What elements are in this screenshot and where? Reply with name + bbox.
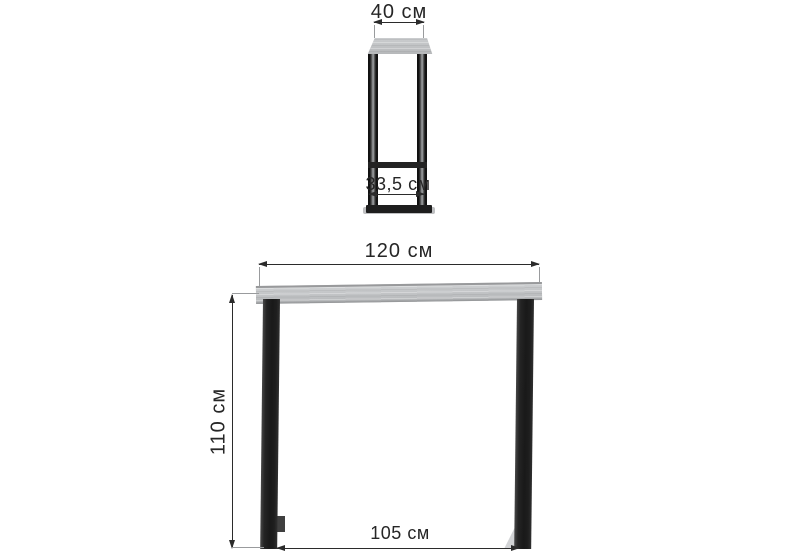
extension-line	[374, 25, 375, 38]
tabletop-side	[365, 36, 435, 56]
dimension-diagram: 40 см 33,5 см 120 см	[0, 0, 800, 560]
front-view-figure: 120 см 110 см 105 см	[0, 230, 800, 560]
arrowhead-left-icon	[373, 19, 382, 25]
front-width-label: 120 см	[339, 240, 459, 263]
arrowhead-left-icon	[368, 191, 377, 197]
arrowhead-left-icon	[258, 261, 267, 267]
extension-line	[423, 25, 424, 38]
side-view-figure: 40 см 33,5 см	[0, 0, 800, 230]
arrowhead-right-icon	[416, 19, 425, 25]
front-width-dimension-line	[259, 264, 539, 265]
arrowhead-left-icon	[276, 545, 285, 551]
front-height-label: 110 см	[208, 377, 231, 467]
extension-line	[259, 267, 260, 287]
rear-foot-left	[277, 516, 285, 532]
arrowhead-right-icon	[511, 545, 520, 551]
tabletop-front	[256, 282, 542, 304]
side-top-width-dimension-line	[374, 22, 424, 23]
side-top-width-label: 40 см	[339, 1, 459, 24]
arrowhead-right-icon	[531, 261, 540, 267]
front-base-width-dimension-line	[277, 548, 519, 549]
table-leg-front-right	[514, 299, 534, 549]
foot-bar	[366, 205, 432, 213]
frame-crossbar	[368, 162, 427, 168]
extension-line	[539, 267, 540, 283]
front-height-dimension-line	[232, 295, 233, 548]
table-leg-front-left	[260, 299, 280, 549]
extension-line	[232, 293, 259, 294]
side-base-depth-dimension-line	[369, 194, 424, 195]
arrowhead-up-icon	[229, 294, 235, 303]
side-base-depth-label: 33,5 см	[338, 174, 458, 195]
extension-line	[232, 547, 264, 548]
front-base-width-label: 105 см	[340, 523, 460, 544]
arrowhead-right-icon	[416, 191, 425, 197]
